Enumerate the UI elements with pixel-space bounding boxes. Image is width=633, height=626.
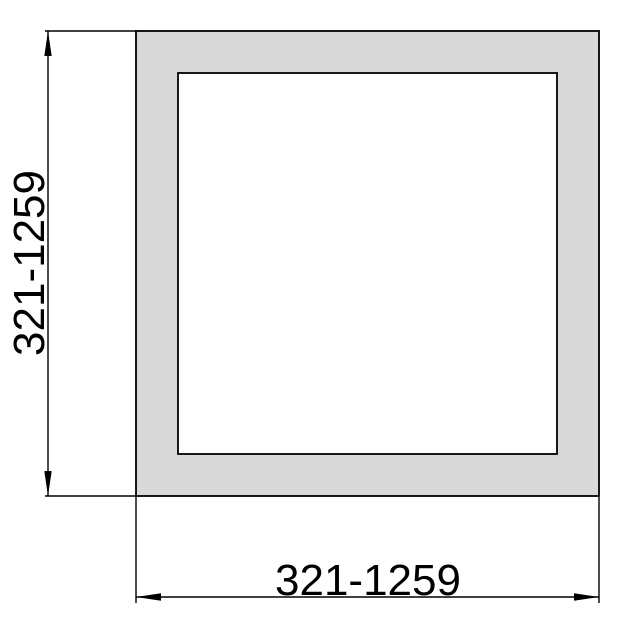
inner-profile-square <box>178 73 557 454</box>
arrowhead-up-icon <box>44 31 51 56</box>
tube-profile-drawing: 321-1259 321-1259 <box>0 0 633 626</box>
height-dimension-label: 321-1259 <box>5 170 54 356</box>
drawing-canvas: 321-1259 321-1259 <box>0 0 633 626</box>
arrowhead-down-icon <box>44 471 51 496</box>
width-dimension-label: 321-1259 <box>275 556 461 605</box>
arrowhead-left-icon <box>136 593 161 600</box>
arrowhead-right-icon <box>574 593 599 600</box>
